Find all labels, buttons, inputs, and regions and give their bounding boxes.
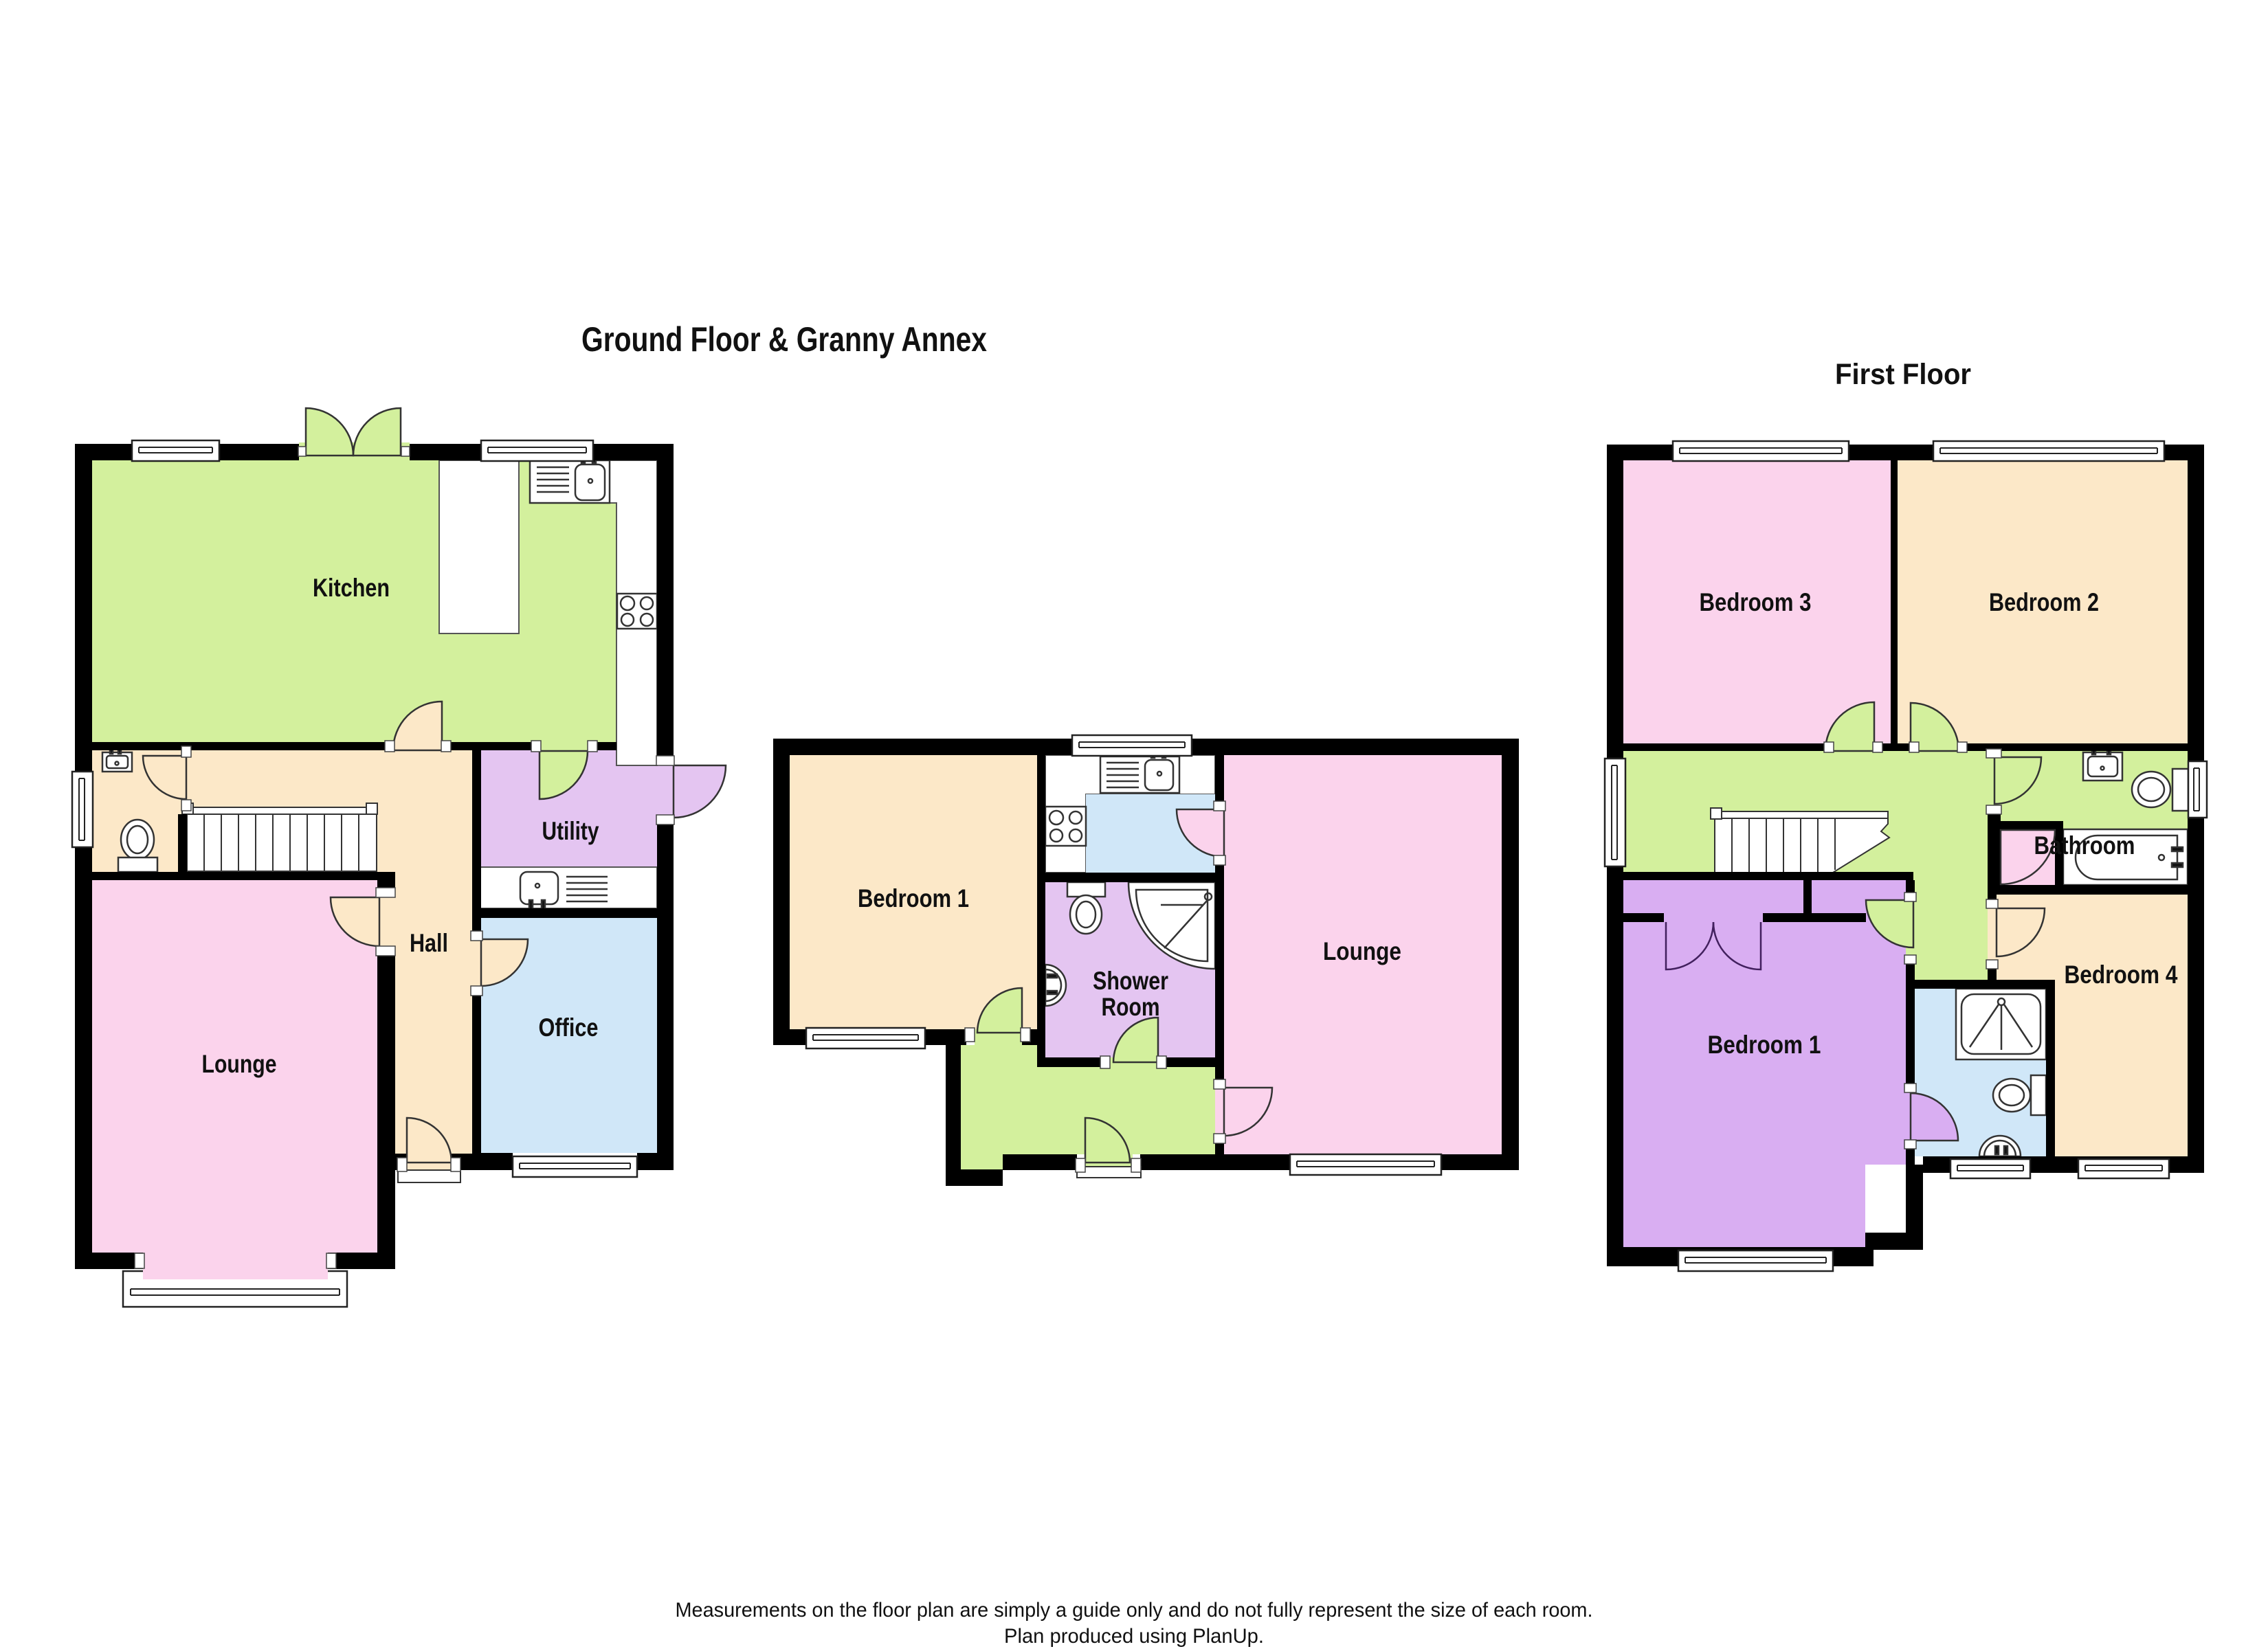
svg-text:Bedroom 1: Bedroom 1 [1708,1031,1821,1059]
svg-text:Lounge: Lounge [1323,937,1401,965]
svg-text:Bedroom 4: Bedroom 4 [2065,961,2178,989]
svg-text:Bedroom 2: Bedroom 2 [1989,588,2099,616]
svg-text:First Floor: First Floor [1835,358,1971,391]
svg-text:Plan produced using PlanUp.: Plan produced using PlanUp. [1004,1625,1264,1648]
svg-text:Room: Room [1102,993,1160,1021]
svg-text:Measurements on the floor plan: Measurements on the floor plan are simpl… [676,1599,1593,1622]
svg-text:Hall: Hall [410,929,448,957]
svg-text:Bedroom 1: Bedroom 1 [858,884,969,912]
svg-text:Bathroom: Bathroom [2034,831,2135,860]
svg-text:Kitchen: Kitchen [313,574,390,602]
svg-text:Shower: Shower [1093,967,1168,995]
svg-text:Bedroom 3: Bedroom 3 [1700,588,1812,616]
svg-text:Ground Floor & Granny Annex: Ground Floor & Granny Annex [581,320,987,359]
svg-text:Lounge: Lounge [202,1050,277,1078]
svg-text:Utility: Utility [542,817,599,845]
svg-text:Office: Office [539,1013,599,1042]
